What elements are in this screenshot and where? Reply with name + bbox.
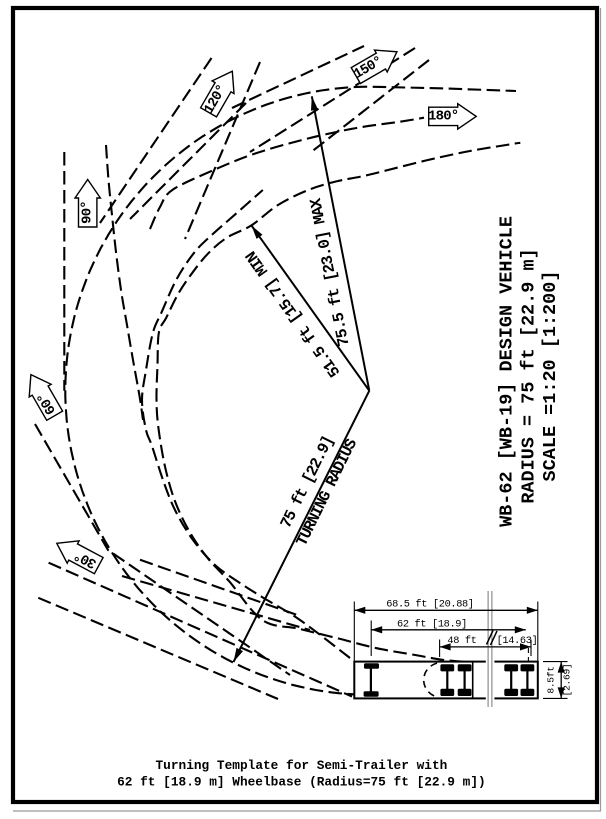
svg-text:68.5 ft [20.88]: 68.5 ft [20.88] [386, 599, 473, 611]
svg-text:48 ft: 48 ft [447, 635, 476, 647]
svg-text:[2.69]: [2.69] [562, 664, 573, 697]
svg-text:62 ft [18.9]: 62 ft [18.9] [397, 618, 467, 630]
svg-text:8.5ft: 8.5ft [545, 666, 556, 693]
svg-text:[14.63]: [14.63] [497, 635, 538, 647]
svg-text:SCALE =1:20 [1:200]: SCALE =1:20 [1:200] [540, 271, 561, 482]
svg-text:180°: 180° [428, 108, 458, 124]
svg-text:WB-62 [WB-19] DESIGN VEHICLE: WB-62 [WB-19] DESIGN VEHICLE [497, 216, 518, 527]
svg-text:62 ft [18.9 m] Wheelbase (Radi: 62 ft [18.9 m] Wheelbase (Radius=75 ft [… [117, 775, 486, 790]
svg-text:RADIUS = 75 ft [22.9 m]: RADIUS = 75 ft [22.9 m] [519, 248, 540, 503]
svg-text:Turning Template for Semi-Trai: Turning Template for Semi-Trailer with [155, 758, 447, 773]
svg-text:90°: 90° [80, 201, 96, 224]
